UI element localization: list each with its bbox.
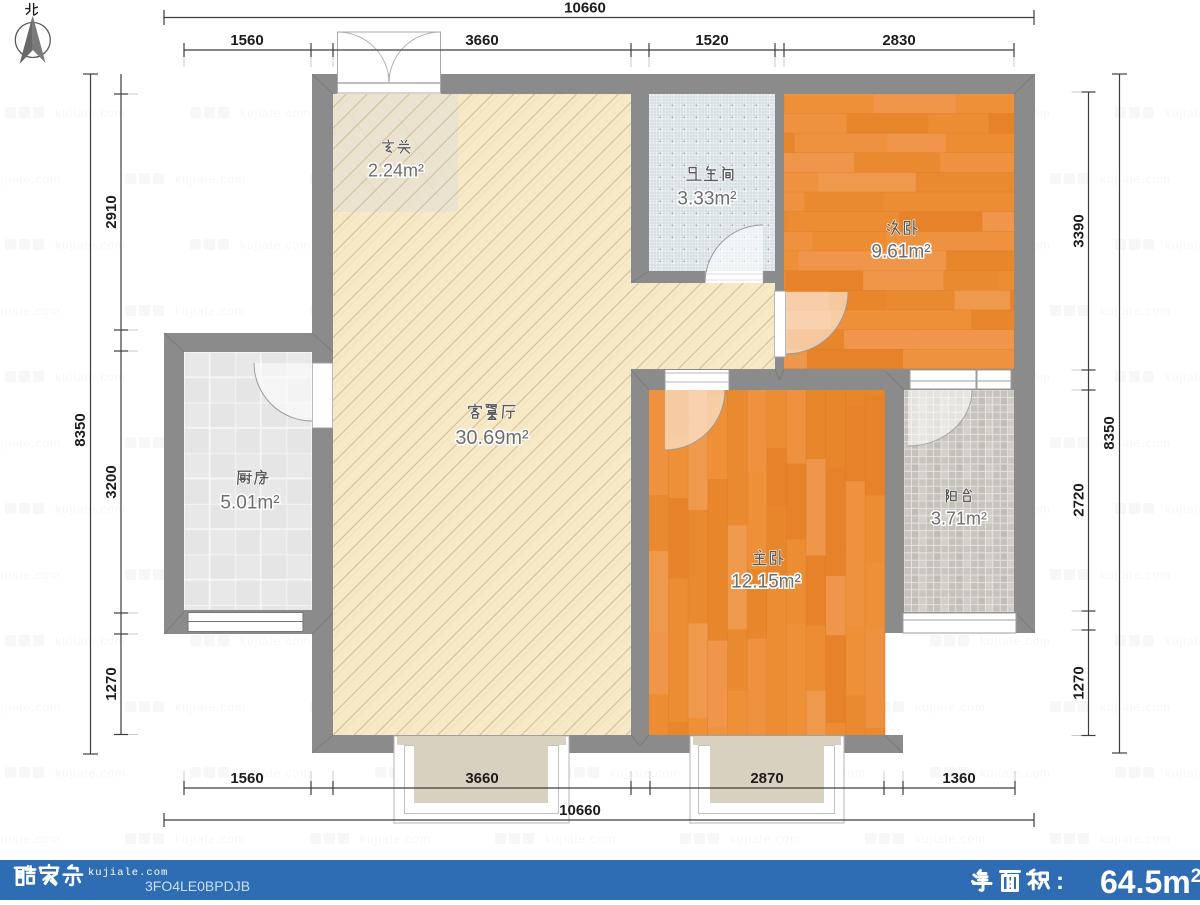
svg-text:3.33m²: 3.33m² [677,189,736,210]
svg-text:kujiale.com: kujiale.com [0,700,61,714]
svg-text:kujiale.com: kujiale.com [980,634,1051,648]
svg-text:10660: 10660 [564,0,606,17]
svg-text:kujiale.com: kujiale.com [175,304,246,318]
svg-text:9.61m²: 9.61m² [871,242,930,263]
svg-text:3660: 3660 [465,32,498,49]
svg-text:kujiale.com: kujiale.com [1100,700,1171,714]
svg-text:kujiale.com: kujiale.com [1100,832,1171,846]
svg-text:8350: 8350 [1101,416,1118,449]
svg-text:3.71m²: 3.71m² [931,508,987,528]
svg-text:2.24m²: 2.24m² [368,160,424,180]
svg-text:1360: 1360 [942,770,975,787]
svg-text:3660: 3660 [465,770,498,787]
svg-text:kujiale.com: kujiale.com [1165,370,1200,384]
svg-text:kujiale.com: kujiale.com [1165,238,1200,252]
svg-text:1520: 1520 [695,32,728,49]
svg-text:kujiale.com: kujiale.com [915,832,986,846]
svg-text:kujiale.com: kujiale.com [610,766,681,780]
svg-text:kujiale.com: kujiale.com [0,832,61,846]
svg-text:1270: 1270 [103,667,120,700]
svg-text:kujiale.com: kujiale.com [240,106,311,120]
svg-text:kujiale.com: kujiale.com [175,832,246,846]
svg-text:kujiale.com: kujiale.com [240,634,311,648]
svg-text:kujiale.com: kujiale.com [240,238,311,252]
svg-text:kujiale.com: kujiale.com [1165,106,1200,120]
svg-text:kujiale.com: kujiale.com [0,304,61,318]
svg-text:1270: 1270 [1071,666,1088,699]
svg-text:30.69m²: 30.69m² [455,427,529,449]
svg-text:kujiale.com: kujiale.com [1100,304,1171,318]
svg-text:2830: 2830 [882,32,915,49]
svg-text:3390: 3390 [1071,214,1088,247]
svg-text:kujiale.com: kujiale.com [1165,502,1200,516]
svg-text:2720: 2720 [1071,483,1088,516]
svg-text:2910: 2910 [103,195,120,228]
svg-text:kujiale.com: kujiale.com [175,172,246,186]
svg-text:kujiale.com: kujiale.com [980,766,1051,780]
svg-text:kujiale.com: kujiale.com [1165,634,1200,648]
svg-text:kujiale.com: kujiale.com [0,568,61,582]
svg-text:8350: 8350 [72,413,89,446]
svg-text:kujiale.com: kujiale.com [175,700,246,714]
svg-text:kujiale.com: kujiale.com [0,436,61,450]
svg-text:10660: 10660 [559,802,601,819]
svg-text:64.5m2: 64.5m2 [1100,864,1200,900]
svg-text:1560: 1560 [230,32,263,49]
svg-text:5.01m²: 5.01m² [220,493,279,514]
svg-text:kujiale.com: kujiale.com [1165,766,1200,780]
svg-text:kujiale.com: kujiale.com [915,700,986,714]
svg-text:kujiale.com: kujiale.com [545,832,616,846]
svg-text:kujiale.com: kujiale.com [1100,568,1171,582]
svg-text:2870: 2870 [750,770,783,787]
svg-text:3FO4LE0BPDJB: 3FO4LE0BPDJB [145,878,250,894]
svg-text:1560: 1560 [230,770,263,787]
svg-text:kujiale.com: kujiale.com [1100,172,1171,186]
svg-text:3200: 3200 [103,465,120,498]
svg-text::: : [1056,868,1064,895]
svg-text:kujiale.com: kujiale.com [360,832,431,846]
svg-text:12.15m²: 12.15m² [731,572,801,593]
svg-text:kujiale.com: kujiale.com [0,172,61,186]
svg-text:kujiale.com: kujiale.com [55,766,126,780]
svg-text:kujiale.com: kujiale.com [730,832,801,846]
